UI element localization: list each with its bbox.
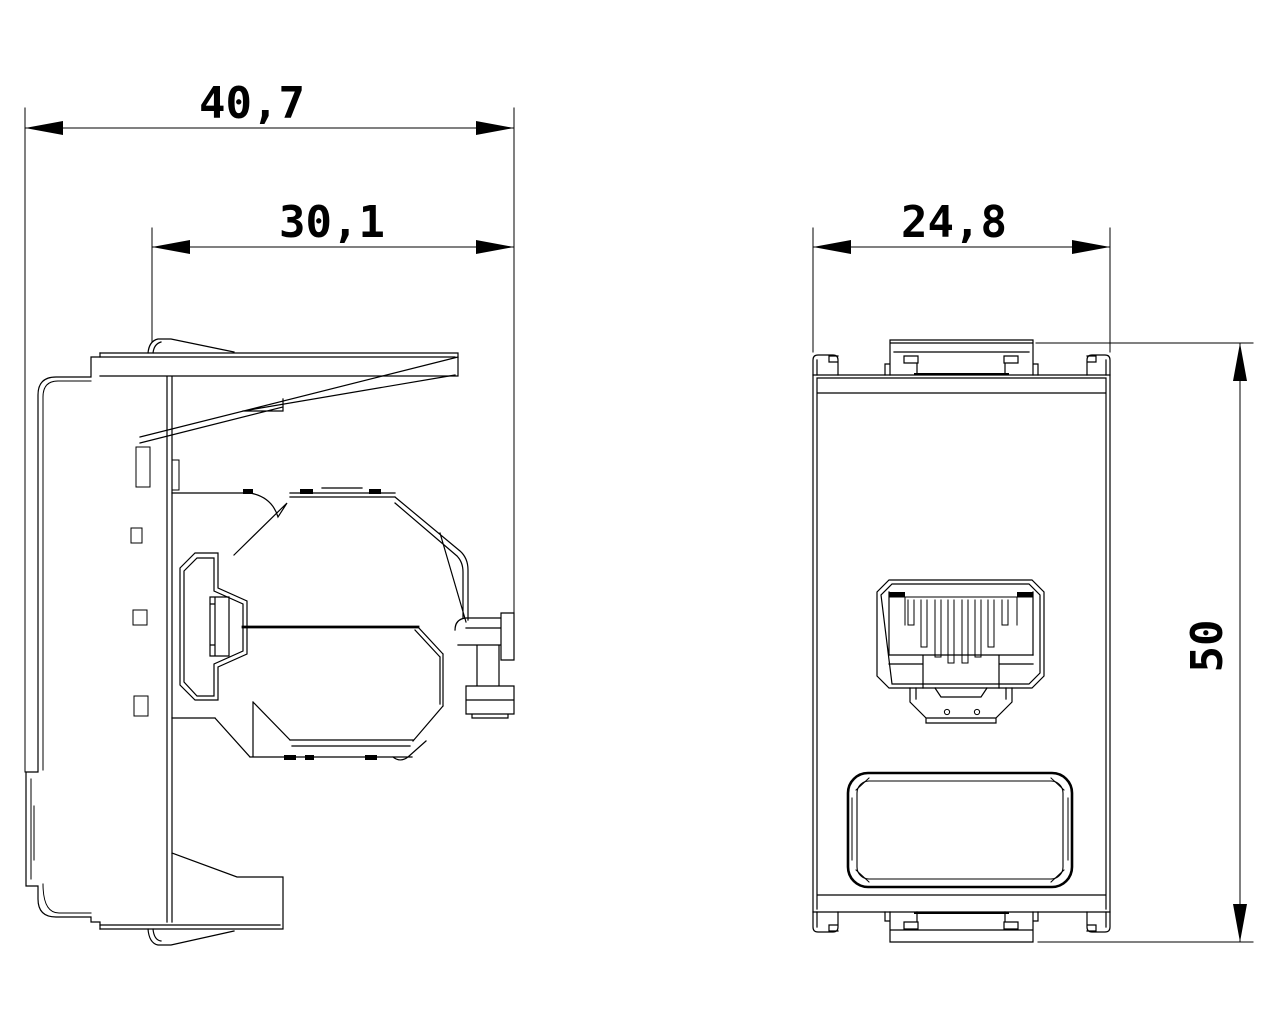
front-view [813,340,1110,942]
front-top-tab [885,340,1038,375]
rj45-latch-pin-right [974,709,979,714]
dimension-front-width: 24,8 [813,197,1110,352]
mounting-hook-bottom-icon [148,929,234,945]
keystone-body-outline [172,488,468,760]
rear-clip-outline [455,613,514,718]
dimension-label-body-depth: 30,1 [279,197,385,248]
rj45-pins [889,597,1033,663]
rj45-mid-lines [889,655,1033,688]
rj45-latch-slot [910,688,1012,723]
drawing-canvas: 40,7 30,1 24,8 50 [0,0,1280,1024]
technical-drawing-sheet: 40,7 30,1 24,8 50 [0,0,1280,1024]
dimension-front-height: 50 [1036,343,1253,942]
top-band [100,353,458,922]
dimension-body-depth: 30,1 [152,197,514,342]
mounting-hook-top-icon [148,339,234,353]
dimension-label-overall-depth: 40,7 [199,78,305,129]
dimension-label-front-width: 24,8 [901,197,1007,248]
jack-black-marks [243,489,381,760]
fixing-wing-lines [140,357,458,443]
label-window-corner-bevels [852,778,1068,882]
dimension-annotations: 40,7 30,1 24,8 50 [25,78,1253,942]
faceplate-inner-lines [31,381,91,913]
side-view [26,339,514,945]
dimension-label-front-height: 50 [1182,620,1233,673]
front-bottom-tab [885,912,1038,942]
keystone-flange-outline [180,553,247,700]
bottom-band [100,853,283,929]
extension-lines [25,108,514,772]
rj45-latch-pin-left [944,709,949,714]
jack-shutter [210,597,229,656]
label-window-inner [857,781,1063,879]
faceplate-outline [26,353,100,929]
label-window-outer [848,773,1072,887]
dimension-overall-depth: 40,7 [25,78,514,772]
rj45-pin-caps [889,592,1033,597]
